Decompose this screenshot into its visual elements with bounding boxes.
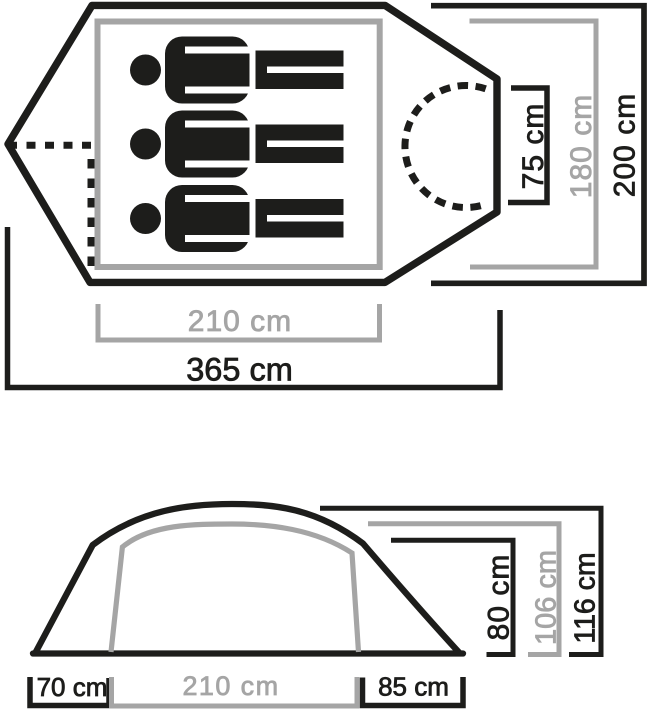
svg-text:365 cm: 365 cm	[186, 352, 293, 388]
svg-text:180 cm: 180 cm	[565, 94, 598, 198]
svg-text:70 cm: 70 cm	[37, 672, 108, 702]
svg-text:200 cm: 200 cm	[609, 93, 642, 197]
svg-text:106 cm: 106 cm	[531, 550, 563, 645]
svg-text:85 cm: 85 cm	[378, 672, 449, 702]
svg-text:116 cm: 116 cm	[570, 552, 602, 643]
svg-text:75 cm: 75 cm	[517, 103, 550, 190]
svg-text:210 cm: 210 cm	[188, 305, 292, 338]
svg-text:80 cm: 80 cm	[483, 554, 516, 641]
svg-text:210 cm: 210 cm	[183, 671, 280, 701]
